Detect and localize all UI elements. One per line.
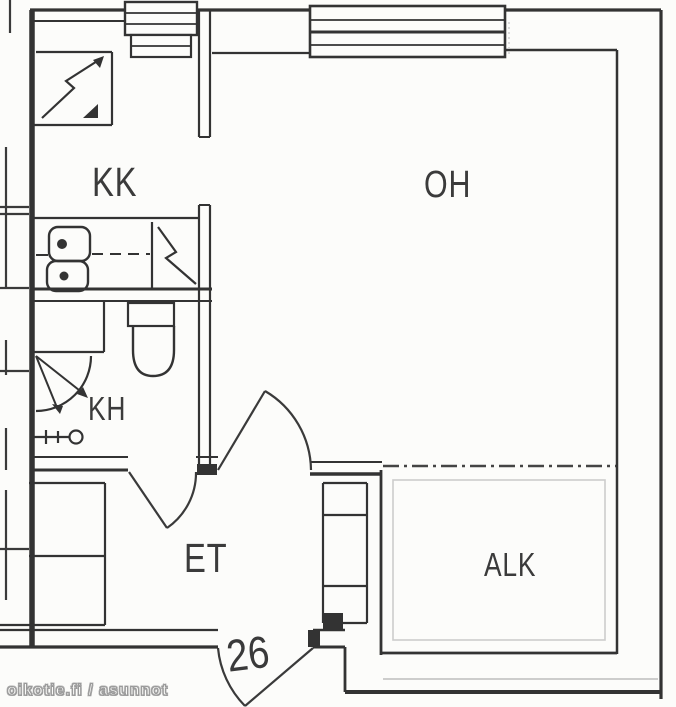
door-swing-icon-living-room xyxy=(218,391,311,470)
neighbor-walls xyxy=(0,0,29,600)
floorplan: KK OH KH ET ALK 26 oikotie.fi / asunnot xyxy=(0,0,676,707)
room-label-oh: OH xyxy=(424,166,471,204)
window-icon-small xyxy=(125,2,197,57)
wardrobe-icon-right xyxy=(323,483,367,630)
wardrobe-icon-left xyxy=(0,483,105,625)
door-swing-icon-bathroom xyxy=(129,472,196,528)
room-label-et: ET xyxy=(184,538,228,579)
double-sink-icon xyxy=(36,227,150,291)
toilet-icon xyxy=(128,303,174,376)
apartment-number: 26 xyxy=(224,629,272,679)
room-label-kk: KK xyxy=(92,162,137,203)
floorplan-drawing xyxy=(0,0,676,707)
watermark: oikotie.fi / asunnot xyxy=(7,682,168,700)
appliance-icon-upper xyxy=(30,52,112,125)
room-label-kh: KH xyxy=(88,392,126,425)
window-icon-large xyxy=(310,6,509,57)
appliance-icon-counter xyxy=(152,222,196,289)
faucet-icon xyxy=(33,430,83,444)
shower-icon xyxy=(36,356,91,414)
outer-walls xyxy=(0,10,661,699)
room-label-alk: ALK xyxy=(484,548,536,581)
